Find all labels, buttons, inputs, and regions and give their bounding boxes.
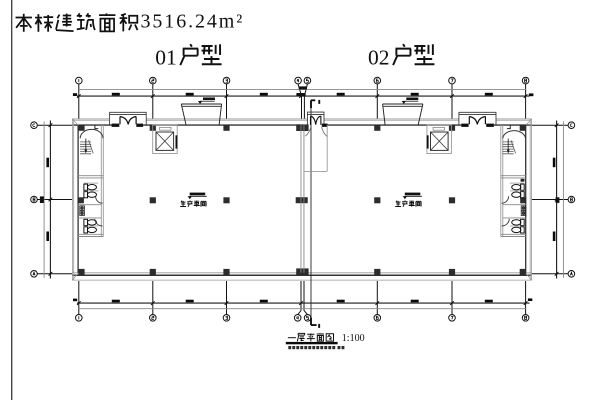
svg-text:01: 01 [155, 46, 177, 70]
svg-text:3516.24m²: 3516.24m² [141, 10, 245, 32]
svg-text:1:100: 1:100 [342, 333, 365, 344]
svg-text:02: 02 [368, 46, 390, 70]
